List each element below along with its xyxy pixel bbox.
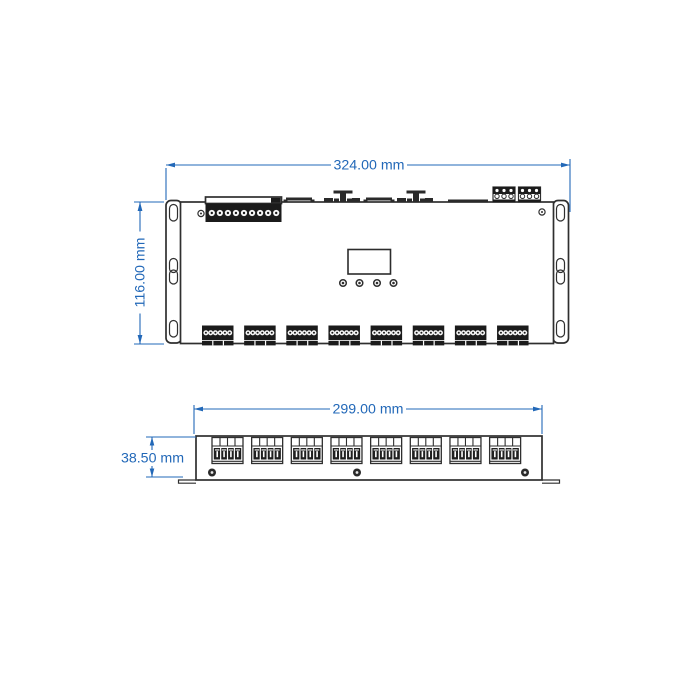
screw-slot — [434, 449, 438, 450]
screw-slot — [294, 449, 298, 450]
screw-slot — [461, 451, 463, 457]
screw-slot — [256, 451, 258, 457]
lcd-display — [348, 250, 391, 275]
top-edge-tab — [324, 198, 333, 202]
screw-slot — [460, 449, 464, 450]
screw-slot — [396, 451, 398, 457]
width-dimension-label-front-view: 299.00 mm — [333, 402, 404, 418]
screw-slot — [316, 451, 318, 457]
screw-slot — [515, 451, 517, 457]
screw-slot — [334, 449, 338, 450]
screw-slot — [422, 451, 424, 457]
screw-slot — [277, 451, 279, 457]
connector-post — [407, 191, 426, 203]
screw-slot — [454, 451, 456, 457]
menu-button — [340, 280, 347, 287]
output-terminal-block — [328, 326, 360, 346]
input-terminal-block — [206, 197, 282, 222]
screw-slot — [415, 451, 417, 457]
screw-slot — [342, 451, 344, 457]
dimension-drawing-page: 324.00 mm 116.00 mm 299.00 mm — [0, 0, 700, 700]
mounting-foot-left — [179, 480, 197, 483]
output-terminal-block — [455, 326, 487, 346]
front-terminal-block — [252, 438, 283, 464]
screw-slot — [222, 449, 226, 450]
front-terminal-block — [450, 438, 481, 464]
screw-slot — [513, 449, 517, 450]
screw-slot — [493, 449, 497, 450]
height-dimension-label-top-view: 116.00 mm — [133, 238, 149, 308]
screw-slot — [375, 451, 377, 457]
screw-slot — [301, 449, 305, 450]
output-terminal-block — [413, 326, 445, 346]
screw-slot — [501, 451, 503, 457]
screw-slot — [237, 451, 239, 457]
screw-slot — [349, 451, 351, 457]
signal-connector-blocks — [493, 187, 541, 202]
input-terminal-pins — [209, 210, 280, 216]
screw-slot — [475, 451, 477, 457]
menu-button — [390, 280, 397, 287]
chassis-screw — [208, 469, 216, 477]
output-terminal-block — [497, 326, 529, 346]
screw-slot — [275, 449, 279, 450]
connector-pin — [495, 189, 498, 192]
dimension-drawing: 324.00 mm 116.00 mm 299.00 mm — [0, 0, 700, 700]
screw-slot — [335, 451, 337, 457]
height-dimension-label-front-view: 38.50 mm — [121, 451, 184, 467]
screw-slot — [229, 449, 233, 450]
screw-slot — [315, 449, 319, 450]
screw-slot — [499, 449, 503, 450]
mounting-ear-right — [553, 201, 569, 344]
screw-slot — [263, 451, 265, 457]
screw-slot — [341, 449, 345, 450]
mounting-foot-right — [542, 480, 560, 483]
screw-slot — [387, 449, 391, 450]
signal-connector-block — [493, 187, 515, 202]
screw-slot — [309, 451, 311, 457]
top-edge-tab — [425, 198, 433, 202]
front-terminal-block — [331, 438, 362, 464]
top-view — [166, 187, 569, 345]
screw-slot — [394, 449, 398, 450]
connector-pin — [509, 189, 512, 192]
screw-slot — [303, 451, 305, 457]
screw-slot — [389, 451, 391, 457]
screw-slot — [308, 449, 312, 450]
chassis-screw — [353, 469, 361, 477]
screw-slot — [356, 451, 358, 457]
connector-pin — [521, 189, 524, 192]
signal-connector-block — [519, 187, 541, 202]
mounting-ear-left — [166, 201, 182, 344]
screw-slot — [428, 451, 430, 457]
connector-pin — [502, 189, 505, 192]
screw-slot — [506, 449, 510, 450]
output-terminal-block — [202, 326, 234, 346]
top-edge-tab — [397, 198, 406, 202]
screw-slot — [215, 449, 219, 450]
front-terminal-block — [490, 438, 521, 464]
top-edge-bar — [448, 200, 488, 203]
height-dimension-front-view: 38.50 mm — [119, 437, 196, 477]
screw-slot — [255, 449, 259, 450]
screw-slot — [270, 451, 272, 457]
screw-slot — [262, 449, 266, 450]
width-dimension-label-top-view: 324.00 mm — [334, 158, 405, 174]
output-terminal-block — [244, 326, 276, 346]
connector-pin — [535, 189, 538, 192]
screw-slot — [236, 449, 240, 450]
screw-slot — [355, 449, 359, 450]
front-terminal-block — [410, 438, 441, 464]
screw-slot — [374, 449, 378, 450]
screw-slot — [420, 449, 424, 450]
output-terminal-block — [286, 326, 318, 346]
top-edge-connectors — [284, 191, 489, 203]
screw-slot — [453, 449, 457, 450]
screw-slot — [474, 449, 478, 450]
screw-slot — [435, 451, 437, 457]
screw-slot — [348, 449, 352, 450]
connector-pin — [528, 189, 531, 192]
screw-slot — [381, 449, 385, 450]
menu-button — [374, 280, 381, 287]
height-dimension-top-view: 116.00 mm — [132, 202, 165, 344]
screw-slot — [467, 449, 471, 450]
width-dimension-front-view: 299.00 mm — [194, 401, 542, 434]
screw-slot — [268, 449, 272, 450]
chassis-screw — [521, 469, 529, 477]
menu-button — [356, 280, 363, 287]
screw-slot — [223, 451, 225, 457]
screw-slot — [468, 451, 470, 457]
top-edge-tab — [352, 198, 360, 202]
front-terminal-block — [371, 438, 402, 464]
screw-slot — [494, 451, 496, 457]
screw-slot — [216, 451, 218, 457]
connector-post — [334, 191, 353, 203]
output-terminal-block — [371, 326, 403, 346]
screw-slot — [413, 449, 417, 450]
screw-slot — [382, 451, 384, 457]
front-terminal-block — [291, 438, 322, 464]
screw-slot — [296, 451, 298, 457]
front-terminal-block — [212, 438, 243, 464]
screw-slot — [508, 451, 510, 457]
screw-slot — [427, 449, 431, 450]
front-view — [179, 436, 560, 483]
screw-slot — [230, 451, 232, 457]
